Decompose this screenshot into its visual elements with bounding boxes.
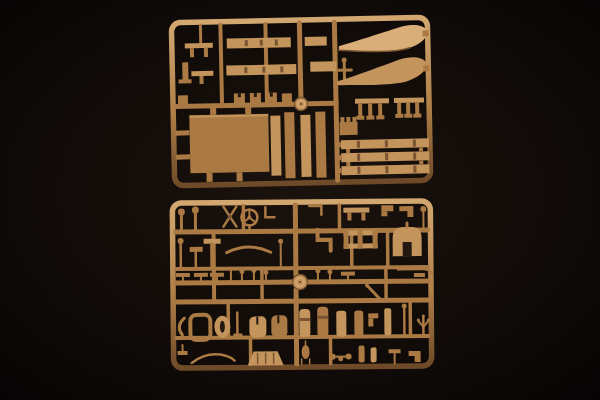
small-part	[409, 351, 421, 356]
sprue-shape	[406, 103, 410, 115]
sprue-shape	[256, 316, 258, 324]
beam-part	[227, 37, 291, 48]
tank-part	[336, 311, 346, 337]
lower-sprue-logo-medallion	[292, 274, 307, 289]
sprue-shape	[427, 318, 430, 321]
small-part	[343, 207, 369, 212]
sprue-shape	[385, 166, 388, 173]
sprue-shape	[347, 213, 351, 221]
sprue-shape	[176, 154, 190, 159]
sprue-shape	[357, 141, 360, 148]
sprue-shape	[233, 334, 242, 338]
tank-part	[299, 309, 310, 337]
runner	[220, 25, 222, 103]
beam-part	[226, 64, 296, 75]
sprue-shape	[368, 104, 372, 117]
sprue-shape	[254, 93, 257, 97]
sprue-shape	[270, 93, 273, 97]
sprue-shape	[413, 140, 416, 147]
sprue-shape	[244, 67, 247, 73]
sprue-shape	[366, 115, 374, 119]
sprue-shape	[199, 76, 203, 84]
sprue-shape	[179, 79, 192, 83]
sprue-shape	[404, 114, 412, 118]
plank-part	[300, 115, 311, 177]
sprue-shape	[423, 30, 429, 36]
sprue-shape	[415, 103, 419, 115]
sprue-shape	[357, 154, 360, 161]
runner	[296, 290, 297, 364]
sprue-shape	[368, 318, 373, 326]
runner	[308, 281, 428, 282]
sprue-shape	[376, 115, 384, 119]
sprue-shape	[413, 166, 416, 173]
sprue-shape	[423, 65, 429, 71]
small-part	[191, 71, 213, 76]
sprue-shape	[415, 356, 421, 362]
small-part	[178, 209, 185, 216]
small-part	[384, 308, 391, 335]
sprue-shape	[236, 172, 242, 181]
sprue-shape	[238, 93, 241, 97]
beam-part	[305, 36, 327, 45]
sprue-photo	[0, 0, 600, 400]
sprue-shape	[358, 230, 363, 248]
sprue-shape	[413, 153, 416, 160]
sprue-shape	[419, 160, 423, 164]
sprue-shape	[337, 155, 341, 160]
sprue-shape	[385, 153, 388, 160]
runner	[308, 103, 336, 104]
sprue-shape	[346, 149, 350, 153]
sprue-shape	[337, 168, 341, 173]
small-part	[185, 43, 213, 49]
sprue-shape	[247, 215, 251, 219]
sprue-shape	[228, 215, 232, 219]
sprue-shape	[262, 67, 265, 73]
sprue-shape	[413, 113, 421, 117]
clip-part	[282, 93, 292, 102]
sprue-shape	[385, 140, 388, 147]
small-part	[359, 345, 365, 362]
sprue-shape	[176, 130, 190, 135]
small-part	[271, 315, 287, 337]
small-part	[371, 347, 377, 362]
small-part	[182, 62, 188, 81]
small-part	[381, 205, 393, 211]
sprue-shape	[280, 66, 283, 72]
sprue-shape	[277, 315, 279, 323]
sprue-shape	[245, 107, 251, 114]
sprue-shape	[378, 103, 382, 116]
plank-part	[315, 111, 326, 177]
runner	[176, 104, 294, 106]
beam-part	[310, 61, 336, 72]
small-part	[339, 122, 357, 135]
sprue-shape	[422, 314, 425, 317]
sprue-shape	[358, 104, 362, 117]
sprue-shape	[403, 242, 412, 256]
sprue-shape	[357, 167, 360, 174]
tank-part	[354, 310, 363, 336]
runner	[299, 23, 301, 98]
sprue-shape	[381, 211, 387, 216]
plank-part	[270, 115, 281, 175]
comb-part	[394, 97, 424, 103]
sprue-shape	[275, 39, 278, 45]
comb-part	[355, 98, 389, 104]
upper-sprue-logo-medallion	[294, 97, 307, 110]
runner	[295, 205, 296, 275]
sprue-shape	[407, 211, 413, 217]
sprue-shape	[206, 173, 212, 182]
sprue-shape	[190, 48, 194, 57]
photo-stage	[0, 0, 600, 400]
sprue-shape	[419, 147, 423, 151]
sprue-shape	[417, 318, 420, 321]
sprue-shape	[344, 231, 349, 249]
sprue-shape	[337, 142, 341, 147]
sprue-shape	[397, 103, 401, 115]
large-panel-part	[189, 114, 269, 174]
sprue-shape	[210, 108, 216, 115]
sprue-shape	[356, 116, 364, 120]
runner	[265, 24, 267, 102]
sprue-shape	[346, 162, 350, 166]
small-part	[192, 206, 199, 213]
runner	[176, 282, 292, 283]
small-part	[414, 273, 425, 277]
small-part	[399, 206, 413, 211]
sprue-shape	[204, 48, 208, 57]
tank-part	[317, 307, 328, 337]
sprue-shape	[373, 230, 378, 248]
small-part	[178, 95, 188, 104]
small-part	[368, 313, 378, 318]
sprue-shape	[260, 40, 263, 46]
plank-part	[284, 112, 295, 178]
sprue-shape	[245, 40, 248, 46]
sprue-shape	[395, 114, 403, 118]
sprue-shape	[299, 318, 310, 321]
sprue-shape	[361, 212, 365, 220]
sprue-shape	[317, 316, 328, 319]
